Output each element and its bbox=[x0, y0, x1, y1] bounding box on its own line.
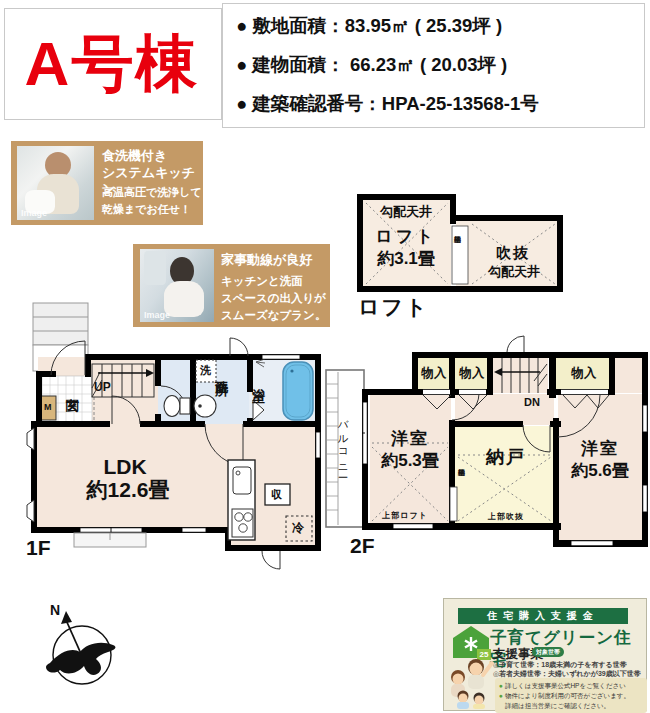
banner-notes: ●詳しくは支援事業公式HPをご覧ください ●物件により制度利用の可否がございます… bbox=[495, 678, 647, 713]
note-bullet: ● bbox=[499, 681, 503, 691]
washroom-label: 洗面所 bbox=[215, 370, 228, 373]
washer-label: 洗 bbox=[200, 365, 211, 376]
room2-size-label: 約5.6畳 bbox=[571, 462, 629, 479]
floor2-label: 2F bbox=[350, 535, 375, 556]
storage-room-label: 納戸 bbox=[486, 448, 526, 466]
room1-label: 洋室 bbox=[391, 430, 429, 447]
fridge-label: 冷 bbox=[292, 522, 304, 534]
storage-label: 収 bbox=[271, 489, 282, 500]
ldk-label: LDK bbox=[103, 456, 146, 477]
loft-room-size: 約3.1畳 bbox=[377, 250, 435, 267]
banner-badge: 対象世帯 bbox=[532, 647, 564, 657]
loft-sloped-ceiling-right: 勾配天井 bbox=[488, 265, 540, 278]
bath-label: 浴室 bbox=[252, 377, 265, 381]
room1-size-label: 約5.3畳 bbox=[381, 452, 439, 469]
compass-icon bbox=[46, 611, 115, 684]
banner-header: 住宅購入支援金 bbox=[458, 608, 628, 624]
closet3-label: 物入 bbox=[572, 367, 597, 380]
room1-note-label: 上部ロフト bbox=[382, 512, 428, 520]
compass-north-label: N bbox=[50, 603, 60, 617]
meter-box-label: M bbox=[44, 403, 52, 412]
note-text: 詳しくは支援事業公式HPをご覧ください bbox=[505, 681, 626, 691]
closet1-label: 物入 bbox=[422, 367, 447, 380]
support-program-banner: 住宅購入支援金 25 子育てグリーン住宅 支援事業 対象世帯 ◎子育て世帯：18… bbox=[443, 598, 647, 711]
ldk-size-label: 約12.6畳 bbox=[87, 479, 170, 500]
stairs-dn-label: DN bbox=[524, 397, 540, 408]
family-illustration bbox=[446, 655, 496, 709]
stairs-up-label: UP bbox=[94, 381, 111, 393]
note-text: 物件により制度利用の可否がございます。 bbox=[505, 691, 630, 701]
loft-void-label: 吹抜 bbox=[496, 245, 530, 260]
loft-sloped-ceiling-left: 勾配天井 bbox=[380, 205, 432, 218]
note-bullet: ● bbox=[499, 691, 503, 701]
note-text: 詳細は担当営業にご確認ください。 bbox=[505, 701, 610, 711]
storage-room-note: 上部吹抜 bbox=[488, 513, 524, 521]
loft-floor-label: ロフト bbox=[358, 296, 428, 317]
balcony-label: バルコニー bbox=[338, 412, 349, 475]
floor1-label: 1F bbox=[26, 537, 51, 558]
loft-room-name: ロフト bbox=[375, 228, 436, 245]
closet2-label: 物入 bbox=[460, 367, 485, 380]
flyer-page: A号棟 ● 敷地面積：83.95㎡ ( 25.39坪 ) ● 建物面積： 66.… bbox=[0, 0, 650, 713]
room2-label: 洋室 bbox=[581, 440, 619, 457]
entrance-label: 玄関 bbox=[66, 387, 79, 391]
